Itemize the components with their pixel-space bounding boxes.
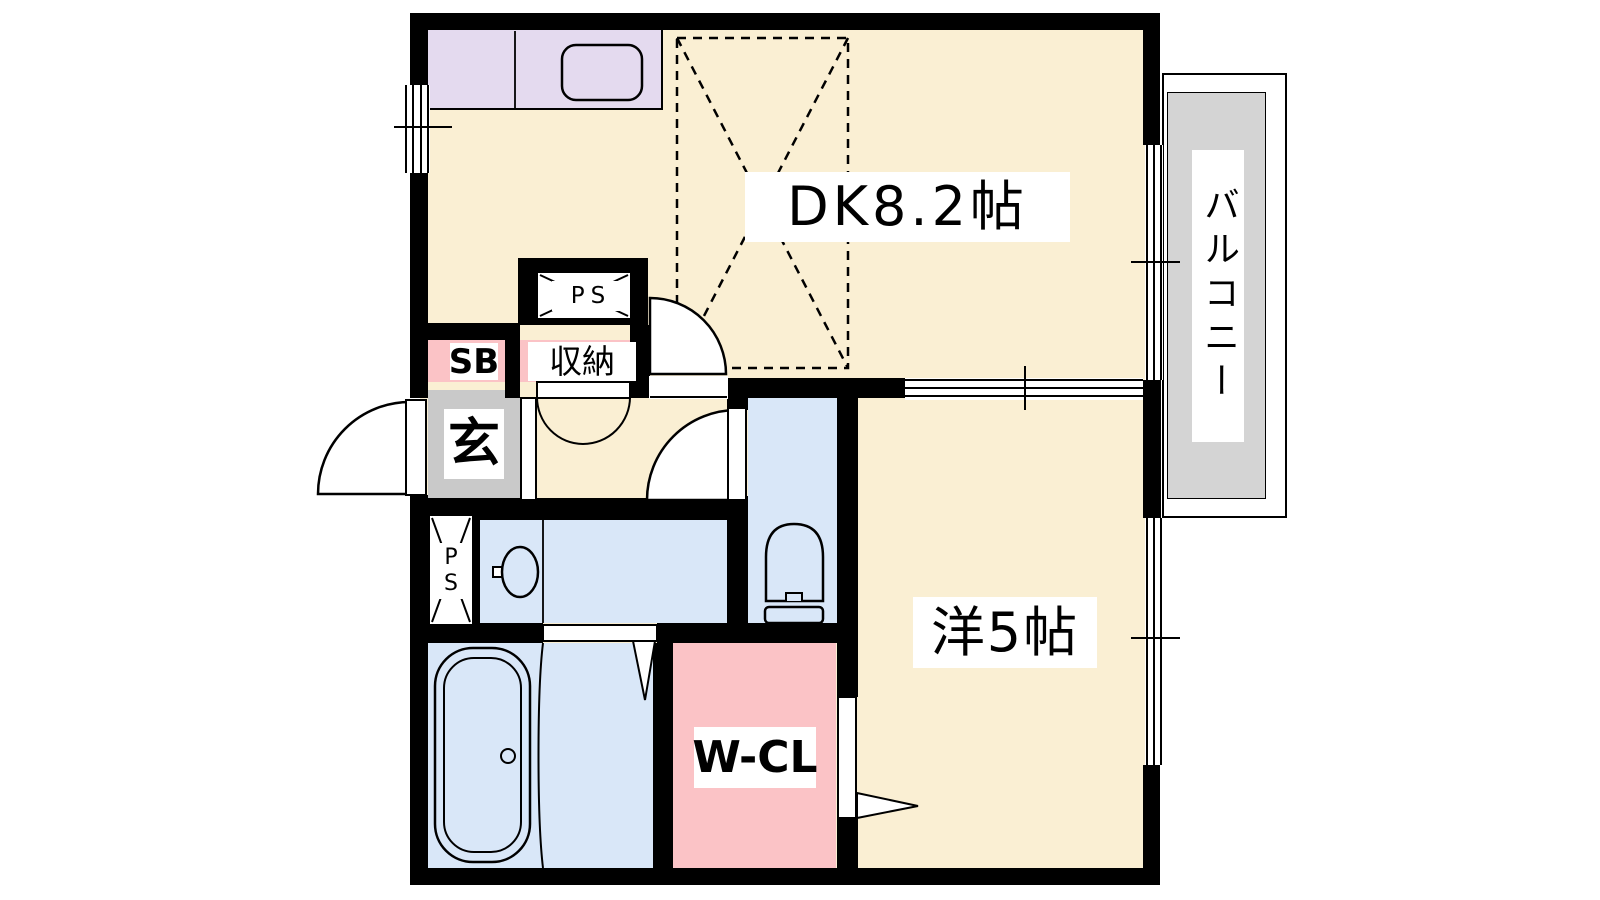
entrance-label: 玄	[444, 409, 504, 479]
toilet-icon	[765, 524, 823, 623]
bathroom-door-icon	[543, 625, 657, 700]
pipe-space-lower-label-s: S	[444, 573, 458, 595]
wcl-door-icon	[838, 697, 918, 818]
dk-room-label: DK8.2帖	[745, 172, 1070, 242]
entrance-step	[521, 398, 536, 500]
washbasin-icon	[493, 520, 543, 623]
floor-plan: DK8.2帖 洋5帖 バルコニー W-CL 玄 SB 収納 PS P S	[0, 0, 1600, 900]
toilet-door-icon	[647, 408, 746, 500]
window-left-icon	[394, 85, 452, 173]
entrance-door-icon	[318, 400, 426, 495]
western-room-label: 洋5帖	[913, 597, 1097, 668]
pipe-space-lower-label-p: P	[444, 547, 457, 569]
pipe-space-lower-label: P S	[437, 543, 465, 599]
walk-in-closet-label: W-CL	[694, 727, 816, 788]
dk-door-icon	[649, 298, 728, 399]
window-balcony-slider-icon	[1131, 145, 1180, 380]
balcony-label: バルコニー	[1192, 150, 1244, 442]
pipe-space-upper-label: PS	[552, 281, 624, 311]
kitchen-sink-icon	[562, 45, 642, 100]
window-west-room-icon	[1131, 518, 1180, 765]
bathtub-icon	[435, 643, 543, 868]
sliding-door-dk-west-icon	[905, 366, 1143, 410]
storage-doors-icon	[537, 382, 630, 444]
shoe-box-label: SB	[450, 343, 498, 380]
storage-label: 収納	[528, 342, 636, 381]
